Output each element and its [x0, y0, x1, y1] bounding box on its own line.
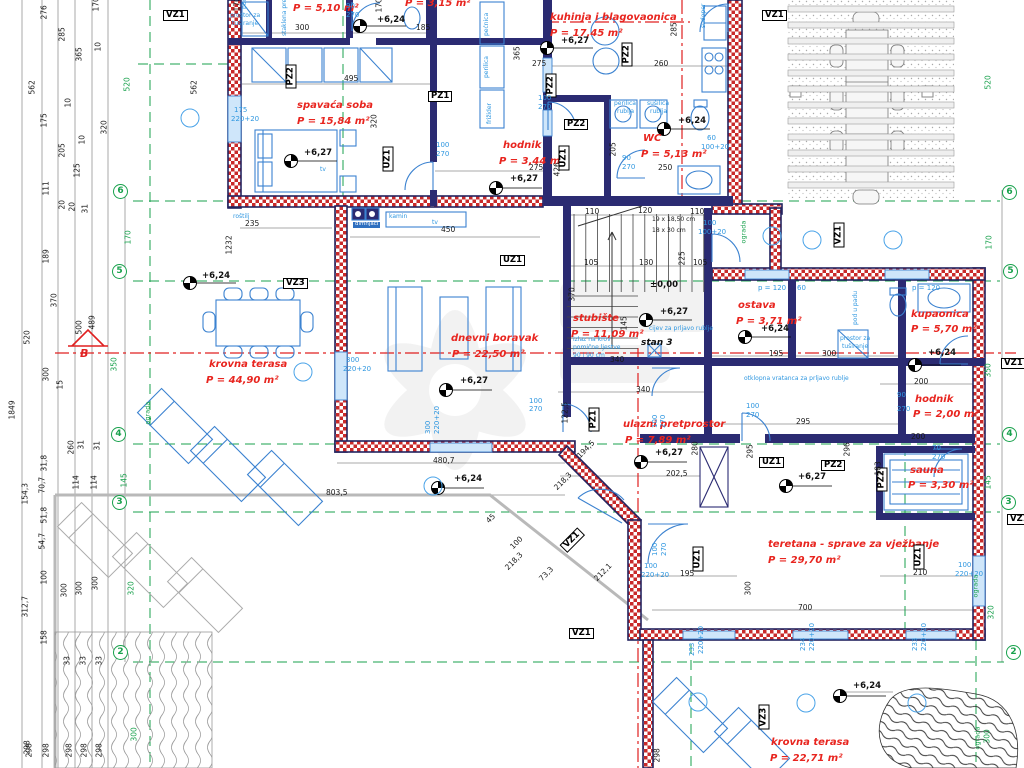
dimension-blue: 220+20	[434, 406, 441, 434]
dimension: 10	[65, 98, 73, 108]
level-text: +6,24	[377, 16, 405, 25]
room-label: hodnik	[503, 141, 541, 151]
dimension-green: 520	[985, 75, 993, 89]
room-label: P = 7,89 m²	[625, 436, 691, 446]
dimension: 562	[191, 80, 199, 94]
dimension-blue: 270	[622, 164, 635, 171]
opening-tag: VZ1	[560, 528, 585, 553]
dimension: 340	[610, 356, 624, 364]
dimension: 205	[610, 142, 618, 156]
dimension: 54,7	[39, 533, 47, 550]
opening-tag: PZ2	[286, 64, 297, 88]
dimension: 365	[514, 46, 522, 60]
annotation-note: otklopna vratanca za prljavo rublje	[744, 376, 849, 382]
dimension: 195	[769, 350, 783, 358]
dimension: 10	[79, 135, 87, 145]
dimension: 489	[89, 315, 97, 329]
dimension-blue: 100	[746, 403, 759, 410]
fence-label: ograda	[973, 575, 980, 598]
dimension: 185	[416, 24, 430, 32]
annotation-note: tuširanje	[842, 344, 868, 350]
dimension: 122,5	[562, 402, 570, 423]
dimension: 298	[654, 748, 662, 762]
dimension: 295	[796, 418, 810, 426]
room-label: P = 5,13 m²	[641, 150, 707, 160]
dimension: 500	[76, 320, 84, 334]
dimension: 298	[26, 743, 34, 757]
dimension: 235	[245, 220, 259, 228]
dimension: 33	[96, 656, 104, 666]
level-text: +6,24	[853, 682, 881, 691]
dimension-blue: 100	[538, 95, 551, 102]
dimension-green: 350	[111, 357, 119, 371]
room-label: stubište	[573, 314, 619, 324]
dimension: 276	[41, 5, 49, 19]
dimension: 480,7	[433, 457, 454, 465]
opening-tag: VZ1	[569, 628, 594, 639]
dimension-green: 300	[131, 727, 139, 741]
dimension: 250	[658, 164, 672, 172]
annotation-note: perilica	[484, 56, 490, 78]
annotation-note: sušilica	[647, 101, 669, 107]
dimension: 803,5	[326, 489, 347, 497]
dimension: 110	[585, 208, 599, 216]
annotation-note: pećnica	[484, 13, 490, 36]
dimension: 700	[798, 604, 812, 612]
opening-tag: PZ1	[428, 91, 452, 102]
dimension-blue: 233	[912, 638, 919, 651]
dimension: 195	[680, 570, 694, 578]
opening-tag: PZ2	[622, 42, 633, 66]
opening-tag: VZ3	[759, 705, 770, 730]
dimension: 100	[509, 535, 524, 550]
opening-tag: PZ2	[821, 460, 845, 471]
dimension-green: 170	[125, 230, 133, 244]
level-text: +6,27	[655, 449, 683, 458]
room-label: ostava	[738, 301, 776, 311]
level-text: +6,27	[798, 473, 826, 482]
dimension-blue: p = 120	[758, 285, 786, 292]
dimension: 170	[93, 0, 101, 12]
dimension: 320	[101, 120, 109, 134]
dimension-blue: 270	[746, 412, 759, 419]
level-text: +6,27	[460, 377, 488, 386]
dimension: 15	[57, 380, 65, 390]
room-label: hodnik	[915, 395, 953, 405]
dimension: 300	[745, 581, 753, 595]
opening-tag: UZ1	[759, 457, 784, 468]
dimension: 200	[911, 433, 925, 441]
dimension: 120	[638, 207, 652, 215]
dimension: 70,7	[39, 477, 47, 494]
dimension: 370	[51, 293, 59, 307]
opening-tag: UZ1	[914, 545, 925, 570]
level-text: +6,27	[510, 175, 538, 184]
dimension-blue: 270	[661, 543, 668, 556]
room-label: P = 22,71 m²	[770, 754, 843, 764]
dimension-blue: 100+20	[701, 144, 729, 151]
dimension: 298	[43, 743, 51, 757]
level-text: +6,24	[928, 349, 956, 358]
opening-tag: PZ1	[589, 407, 600, 431]
dimension-green: 320	[988, 605, 996, 619]
annotation-note: dimnjaci	[353, 222, 380, 228]
annotation-note: frižider	[487, 103, 493, 124]
level-text: +6,24	[678, 117, 706, 126]
dimension: 275	[529, 164, 543, 172]
opening-tag: UZ1	[383, 147, 394, 172]
dimension: 130	[639, 259, 653, 267]
dimension-blue: 220+20	[641, 572, 669, 579]
room-label: P = 15,84 m²	[297, 117, 370, 127]
dimension-blue: 300	[425, 421, 432, 434]
dimension-blue: 100	[703, 220, 716, 227]
dimension: 10	[95, 42, 103, 52]
dimension: 218,3	[504, 551, 524, 571]
dimension-blue: 100	[958, 562, 971, 569]
dimension-blue: 175	[234, 107, 247, 114]
grid-marker: 2	[113, 645, 128, 660]
annotation-note: tv	[432, 220, 438, 226]
room-label: P = 3,30 m²	[908, 481, 974, 491]
dimension: 20	[69, 202, 77, 212]
dimension: 225	[679, 251, 687, 265]
dimension: 20	[59, 200, 67, 210]
dimension-green: 145	[985, 475, 993, 489]
dimension: 200	[914, 378, 928, 386]
grid-marker: 3	[1001, 495, 1016, 510]
dimension-blue: 100	[529, 398, 542, 405]
dimension: 33	[64, 656, 72, 666]
annotation-note: stan 3	[641, 339, 673, 348]
dimension-blue: 234	[800, 638, 807, 651]
dimension: 312,7	[22, 596, 30, 617]
room-label: dnevni boravak	[451, 334, 538, 344]
dimension-blue: 270	[346, 12, 359, 19]
room-label: P = 3,15 m²	[405, 0, 471, 9]
dimension-green: 170	[986, 235, 994, 249]
grid-marker: 4	[1002, 427, 1017, 442]
grid-marker: 5	[112, 264, 127, 279]
dimension: 300	[43, 367, 51, 381]
dimension: 73,3	[538, 565, 555, 582]
dimension-blue: 100	[644, 563, 657, 570]
dimension: 520	[24, 330, 32, 344]
dimension: 114	[73, 475, 81, 489]
dimension-blue: 270	[660, 415, 667, 428]
room-label: P = 2,00 m²	[913, 410, 979, 420]
annotation-note: prostor za	[840, 336, 870, 342]
level-text: +6,27	[304, 149, 332, 158]
dimension-green: 145	[121, 473, 129, 487]
dimension-blue: 70	[932, 445, 941, 452]
dimension: 212,1	[593, 562, 613, 582]
room-label: P = 22,50 m²	[452, 350, 525, 360]
dimension: 300	[61, 583, 69, 597]
level-text: +6,27	[561, 37, 589, 46]
dimension: 1849	[9, 400, 17, 419]
dimension: 296	[844, 442, 852, 456]
dimension: 110	[690, 208, 704, 216]
opening-tag: VZ1	[762, 10, 787, 21]
dimension-green: 300	[984, 729, 992, 743]
dimension: 125	[74, 163, 82, 177]
room-label: P = 5,70 m²	[911, 325, 977, 335]
dimension: 218,3	[553, 471, 573, 491]
opening-tag: VZ1	[834, 223, 845, 248]
dimension: 105	[584, 259, 598, 267]
level-text: +6,27	[660, 308, 688, 317]
dimension-blue: 100	[652, 543, 659, 556]
annotation-note: tv	[320, 167, 326, 173]
level-text: +6,24	[202, 272, 230, 281]
grid-marker: 5	[1003, 264, 1018, 279]
level-text: +6,24	[454, 475, 482, 484]
dimension-blue: 270	[538, 104, 551, 111]
annotation-note: 90 i 90 cm	[573, 353, 605, 359]
dimension: 158	[41, 630, 49, 644]
dimension: 183	[875, 461, 883, 475]
annotation-note: cijev za prljavo rublje	[649, 326, 713, 332]
dimension: 426	[554, 162, 562, 176]
opening-tag: VZ1	[163, 10, 188, 21]
dimension: 300	[822, 350, 836, 358]
dimension-blue: 100+20	[698, 229, 726, 236]
dimension-blue: 100	[436, 142, 449, 149]
annotation-note: rublja	[650, 109, 667, 115]
dimension-blue: 90	[622, 155, 631, 162]
dimension-blue: 270	[529, 406, 542, 413]
dimension-blue: 90	[897, 392, 906, 399]
room-label: krovna terasa	[771, 738, 849, 748]
annotation-note: roštilj	[233, 214, 250, 220]
dimension-blue: 220+20	[231, 116, 259, 123]
room-label: P = 44,90 m²	[206, 376, 279, 386]
grid-marker: 2	[1006, 645, 1021, 660]
dimension: 170	[376, 0, 384, 13]
dimension-small: 18 x 30 cm	[652, 228, 686, 234]
dimension-blue: 220+20	[343, 366, 371, 373]
dimension-green: 350	[985, 363, 993, 377]
dimension: 100	[41, 570, 49, 584]
room-label: kuhinja i blagovaonica	[550, 13, 677, 23]
dimension: 145	[621, 316, 629, 330]
dimension: 320	[371, 114, 379, 128]
dimension: 298	[81, 743, 89, 757]
annotation-note: perilica	[614, 101, 636, 107]
annotation-note: B	[80, 348, 88, 359]
opening-tag: UZ1	[693, 547, 704, 572]
room-label: P = 29,70 m²	[768, 556, 841, 566]
annotation-note: pomične ljestve	[573, 345, 620, 351]
fence-label: ograda	[145, 402, 152, 425]
floor-plan-labels: spavaća sobaP = 15,84 m²P = 5,10 m²P = 3…	[0, 0, 1024, 768]
dimension-green: 520	[124, 77, 132, 91]
dimension-blue: 270	[897, 406, 910, 413]
dimension: 170	[234, 0, 242, 12]
dimension: 31,8	[41, 455, 49, 472]
annotation-note: sudoper	[701, 4, 707, 28]
dimension: 51,8	[41, 507, 49, 524]
dimension: 340	[636, 386, 650, 394]
opening-tag: VZ1	[1007, 514, 1024, 525]
opening-tag: UZ1	[500, 255, 525, 266]
annotation-note: staklena pregrada	[282, 0, 288, 36]
dimension-blue: p = 120	[912, 285, 940, 292]
dimension-blue: 300	[346, 357, 359, 364]
grid-marker: 3	[112, 495, 127, 510]
dimension-blue: 270	[932, 454, 945, 461]
dimension: 285	[671, 22, 679, 36]
dimension: 280	[692, 441, 700, 455]
room-label: ulazni pretprostor	[623, 420, 725, 430]
grid-marker: 6	[1002, 185, 1017, 200]
dimension-green: 320	[128, 581, 136, 595]
annotation-note: pod u padu	[853, 291, 859, 325]
opening-tag: VZ3	[283, 278, 308, 289]
dimension-blue: 90	[346, 3, 355, 10]
dimension-blue: 220+20	[809, 623, 816, 651]
dimension: 111	[43, 181, 51, 195]
fence-label: ograda	[975, 727, 982, 750]
dimension: 450	[441, 226, 455, 234]
dimension: 154,3	[22, 483, 30, 504]
dimension: 33	[80, 656, 88, 666]
dimension: 365	[76, 47, 84, 61]
dimension: 300	[92, 576, 100, 590]
dimension: 260	[68, 440, 76, 454]
opening-tag: VZ1	[1001, 358, 1024, 369]
dimension: 205	[59, 143, 67, 157]
dimension-blue: 270	[436, 151, 449, 158]
dimension: 31	[82, 204, 90, 214]
room-label: WC	[643, 134, 661, 144]
dimension: 300	[295, 24, 309, 32]
dimension: 300	[76, 581, 84, 595]
annotation-note: prostor za	[230, 13, 260, 19]
level-text: +6,24	[761, 325, 789, 334]
dimension: 295	[747, 444, 755, 458]
annotation-note: kamin	[389, 214, 407, 220]
dimension-blue: 100	[652, 415, 659, 428]
dimension-blue: 60	[707, 135, 716, 142]
dimension: 194,5	[576, 439, 596, 459]
annotation-note: rublja	[617, 109, 634, 115]
dimension: 562	[29, 80, 37, 94]
dimension: 202,5	[666, 470, 687, 478]
dimension: 31	[78, 440, 86, 450]
dimension: 495	[344, 75, 358, 83]
dimension: 1232	[226, 235, 234, 254]
dimension-blue: 220+20	[921, 623, 928, 651]
dimension-blue: 220+20	[698, 626, 705, 654]
room-label: krovna terasa	[209, 360, 287, 370]
dimension: 298	[66, 743, 74, 757]
room-label: sauna	[910, 466, 944, 476]
room-label: spavaća soba	[297, 101, 373, 111]
dimension: 45	[485, 512, 497, 524]
annotation-note: izlaz na krov	[573, 337, 611, 343]
dimension: 285	[59, 27, 67, 41]
dimension: 189	[43, 249, 51, 263]
dimension-blue: 60	[797, 285, 806, 292]
floor-plan-canvas: spavaća sobaP = 15,84 m²P = 5,10 m²P = 3…	[0, 0, 1024, 768]
dimension-small: 19 x 18,50 cm	[652, 217, 695, 223]
dimension: 114	[91, 475, 99, 489]
annotation-note: tuširanje	[232, 21, 258, 27]
dimension: 175	[41, 113, 49, 127]
dimension: 370	[569, 287, 577, 301]
fence-label: ograda	[741, 221, 748, 244]
room-label: kupaonica	[911, 310, 969, 320]
dimension: 210	[913, 569, 927, 577]
level-text: ±0,00	[650, 281, 678, 290]
opening-tag: PZ2	[564, 119, 588, 130]
annotation-note: pod	[242, 0, 248, 9]
grid-marker: 6	[113, 184, 128, 199]
dimension: 105	[693, 259, 707, 267]
dimension-blue: 233	[689, 643, 696, 656]
dimension: 31	[94, 441, 102, 451]
dimension: 260	[654, 60, 668, 68]
grid-marker: 4	[111, 427, 126, 442]
dimension: 298	[96, 743, 104, 757]
dimension: 275	[532, 60, 546, 68]
